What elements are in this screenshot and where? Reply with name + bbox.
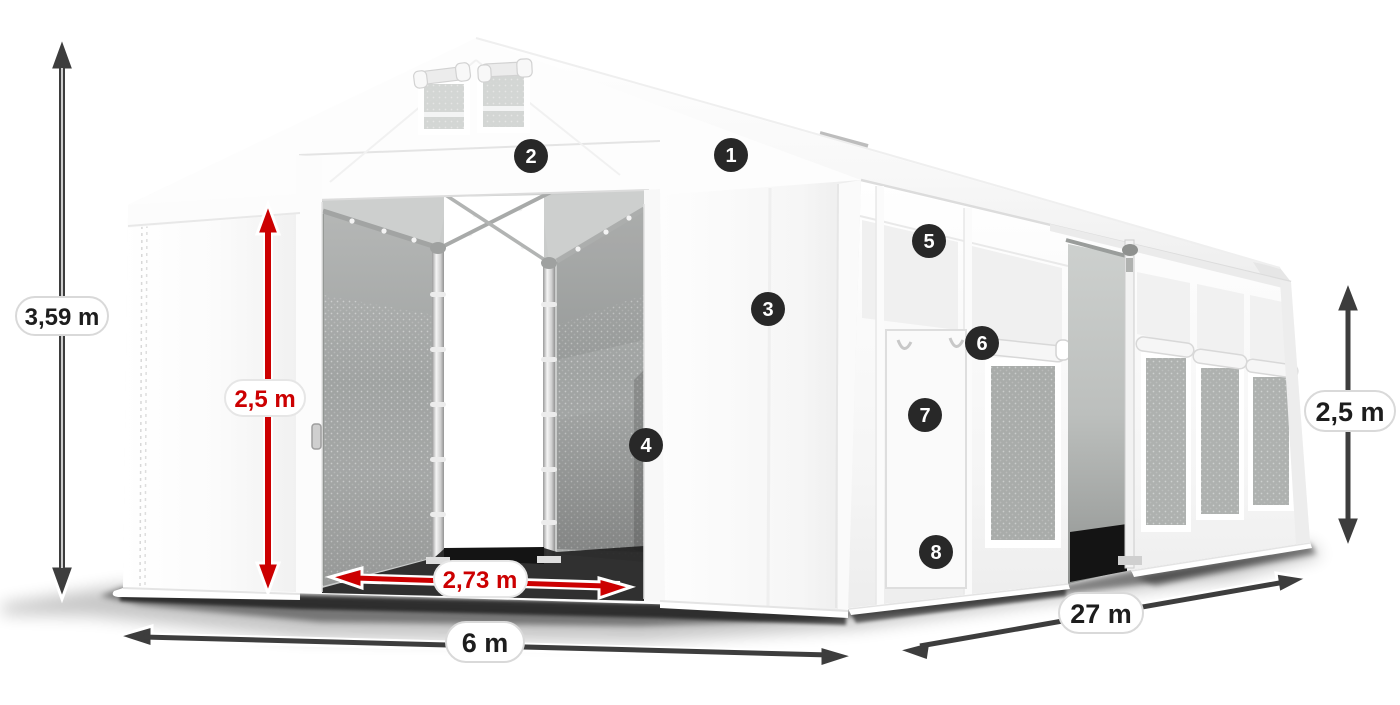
svg-text:4: 4	[640, 435, 652, 457]
svg-text:2,73 m: 2,73 m	[443, 567, 518, 594]
svg-text:5: 5	[923, 231, 934, 253]
svg-text:8: 8	[930, 542, 941, 564]
svg-text:3: 3	[762, 299, 773, 321]
svg-text:2,5 m: 2,5 m	[234, 386, 295, 413]
svg-text:27 m: 27 m	[1070, 599, 1132, 629]
svg-text:7: 7	[919, 405, 930, 427]
svg-text:2,5 m: 2,5 m	[1315, 397, 1384, 427]
svg-text:6: 6	[976, 333, 987, 355]
svg-text:6 m: 6 m	[462, 628, 509, 658]
svg-text:3,59 m: 3,59 m	[25, 304, 100, 331]
svg-text:2: 2	[525, 146, 536, 168]
svg-text:1: 1	[725, 145, 736, 167]
